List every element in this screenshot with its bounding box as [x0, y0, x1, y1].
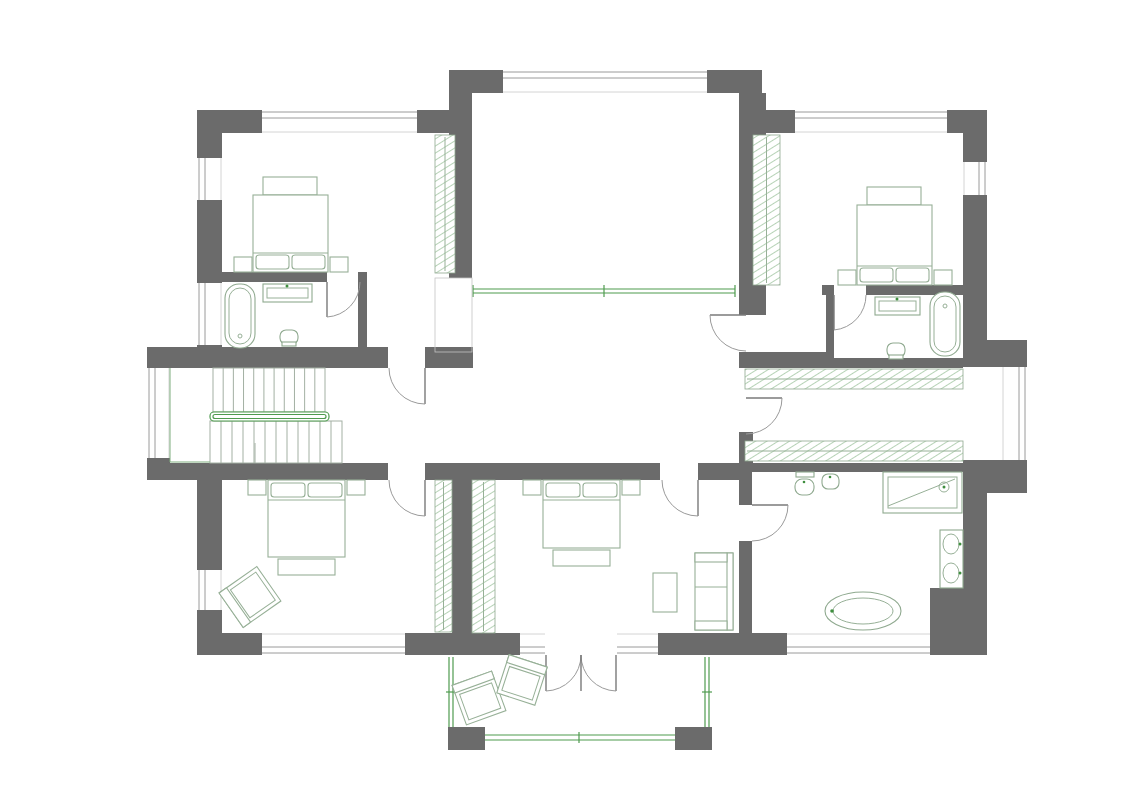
window [1002, 367, 1027, 460]
stairs-railing [210, 412, 329, 421]
floor-plan [0, 0, 1131, 800]
wall [405, 633, 520, 655]
window [617, 633, 658, 655]
faucet [830, 609, 834, 613]
window [795, 110, 947, 133]
wall [822, 285, 834, 295]
wall [963, 195, 987, 340]
window [197, 283, 222, 345]
bed-bench [553, 550, 610, 566]
bed-bench [867, 187, 921, 205]
faucet [829, 476, 832, 479]
nightstand [234, 257, 252, 272]
bed-bench [263, 177, 317, 195]
window-gap [262, 110, 417, 133]
wall [739, 472, 752, 505]
wardrobe [753, 135, 780, 285]
faucet [959, 543, 962, 546]
wall [197, 480, 222, 570]
nightstand [248, 480, 266, 495]
window [503, 70, 707, 93]
faucet [959, 572, 962, 575]
faucet [803, 481, 806, 484]
wall [417, 110, 449, 133]
nightstand [330, 257, 348, 272]
window [197, 570, 222, 610]
wall [197, 633, 262, 655]
wall [739, 110, 795, 133]
window-gap [1002, 367, 1027, 460]
wall [826, 295, 834, 358]
wall [746, 352, 834, 368]
pillar [448, 727, 485, 750]
wall [739, 463, 987, 472]
wall [147, 347, 388, 368]
wall [930, 588, 987, 655]
wardrobe [435, 135, 455, 273]
toilet-base [282, 342, 296, 346]
vanity [940, 530, 963, 588]
faucet [286, 285, 289, 288]
sofa-arm [695, 621, 727, 630]
bed-bench [278, 559, 335, 575]
wall [963, 340, 1027, 367]
window [520, 633, 545, 655]
window [262, 110, 417, 133]
wall [452, 465, 472, 633]
nightstand [934, 270, 952, 285]
wall [358, 272, 367, 352]
wall [963, 110, 987, 162]
nightstand [523, 480, 541, 495]
pillow [256, 255, 289, 269]
pillow [292, 255, 325, 269]
toilet-tank [796, 472, 814, 477]
wall [963, 493, 987, 588]
wall [739, 541, 752, 633]
window-gap [963, 162, 987, 195]
pillar [675, 727, 712, 750]
wall [706, 70, 762, 93]
window-gap [197, 570, 222, 610]
floor-plan-page [0, 0, 1131, 800]
nightstand [622, 480, 640, 495]
pillow [860, 268, 893, 282]
pillow [896, 268, 929, 282]
window [262, 633, 405, 655]
wall [197, 200, 222, 283]
wardrobe [472, 480, 495, 633]
wall [147, 463, 388, 480]
shower-head-dot [943, 486, 946, 489]
wall [449, 70, 503, 93]
wall [197, 610, 222, 633]
nightstand [347, 480, 365, 495]
window [787, 633, 930, 655]
pillow [583, 483, 617, 497]
window-gap [787, 633, 930, 655]
wall [963, 460, 1027, 493]
toilet-base [889, 355, 903, 359]
window-gap [262, 633, 405, 655]
wall [222, 272, 327, 282]
window-gap [197, 283, 222, 345]
wardrobe [435, 480, 452, 632]
wall [425, 347, 473, 368]
wardrobe [745, 441, 963, 461]
window-gap [795, 110, 947, 133]
coffee-table [653, 573, 677, 612]
pillow [308, 483, 342, 497]
window-gap [503, 70, 707, 93]
window-gap [617, 633, 658, 655]
sofa-arm [695, 553, 727, 562]
nightstand [838, 270, 856, 285]
wall [658, 633, 787, 655]
wall [698, 463, 739, 480]
sofa-back [727, 553, 733, 630]
window [197, 158, 222, 200]
pillow [546, 483, 580, 497]
window-gap [520, 633, 545, 655]
pillow [271, 483, 305, 497]
wall [197, 110, 222, 158]
wardrobe [745, 369, 963, 389]
window [963, 162, 987, 195]
window-gap [197, 158, 222, 200]
window [147, 368, 170, 458]
faucet [896, 298, 899, 301]
window-gap [147, 368, 170, 458]
